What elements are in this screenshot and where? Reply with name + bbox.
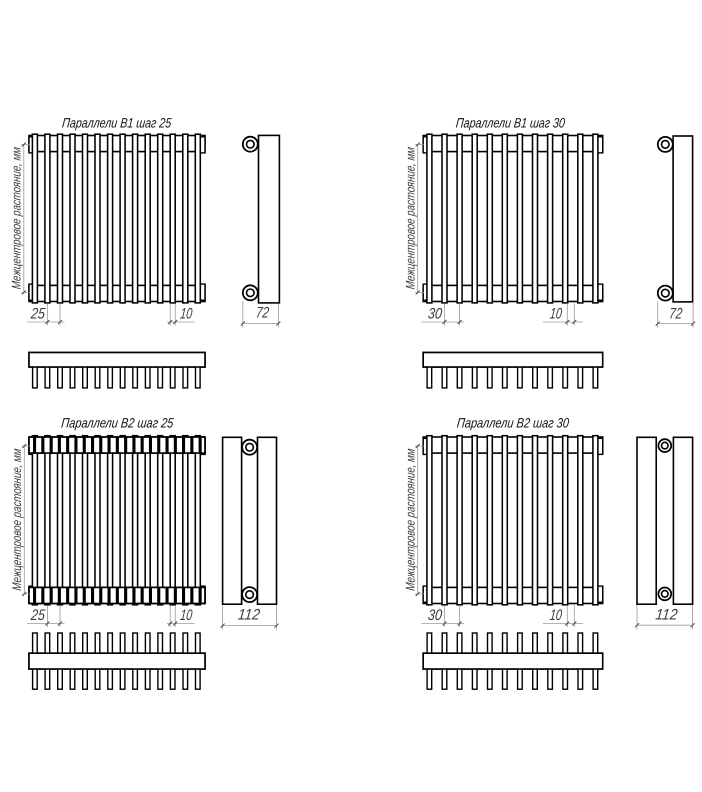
svg-text:Параллели В2 шаг 30: Параллели В2 шаг 30 [456,415,570,430]
svg-text:25: 25 [29,306,46,323]
svg-text:72: 72 [668,306,683,323]
svg-text:Параллели В1 шаг 30: Параллели В1 шаг 30 [455,115,566,130]
svg-text:Межцентровое растояние, мм: Межцентровое растояние, мм [10,448,24,592]
svg-text:10: 10 [179,607,193,624]
svg-text:10: 10 [549,306,563,323]
svg-text:Межцентровое растояние, мм: Межцентровое растояние, мм [404,448,418,592]
svg-text:72: 72 [255,305,270,322]
svg-text:10: 10 [549,607,563,624]
svg-text:Параллели В1 шаг 25: Параллели В1 шаг 25 [61,115,172,130]
svg-text:112: 112 [655,606,679,623]
svg-text:Параллели В2 шаг 25: Параллели В2 шаг 25 [61,415,175,430]
svg-text:Межцентровое растояние, мм: Межцентровое растояние, мм [404,146,418,290]
svg-text:30: 30 [427,306,443,323]
svg-text:25: 25 [29,607,46,624]
svg-text:112: 112 [237,607,261,624]
svg-text:10: 10 [179,306,193,323]
svg-text:Межцентровое растояние, мм: Межцентровое растояние, мм [10,146,24,290]
svg-text:30: 30 [427,607,443,624]
